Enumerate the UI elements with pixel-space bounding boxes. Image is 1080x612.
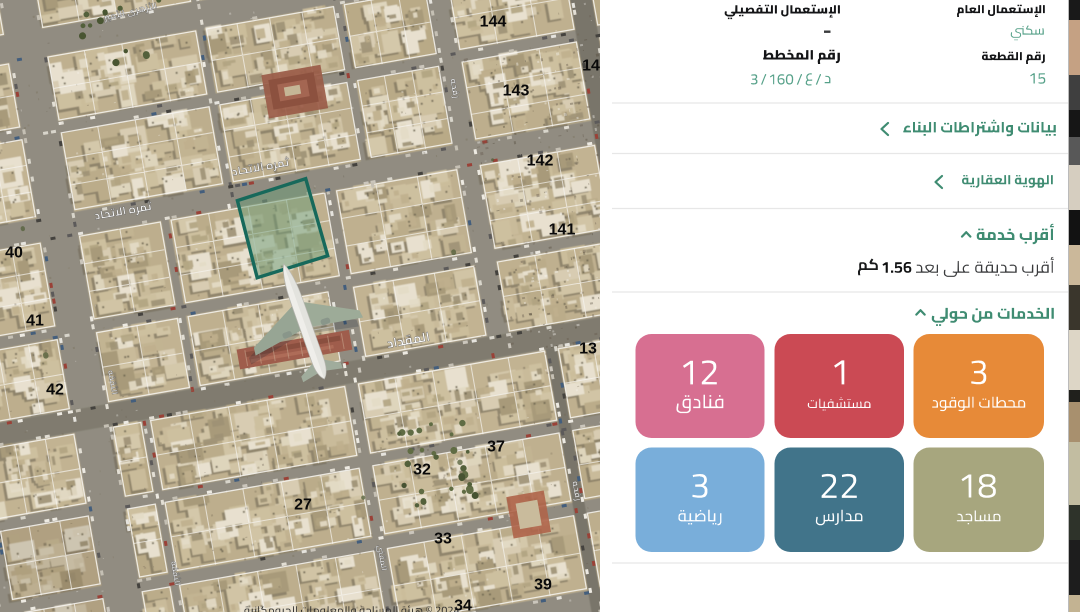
svg-text:41: 41 [26,313,44,330]
svg-text:141: 141 [549,222,576,239]
svg-text:40: 40 [5,245,23,262]
svg-text:33: 33 [434,531,452,548]
svg-text:37: 37 [487,439,505,456]
svg-text:27: 27 [294,497,312,514]
svg-text:142: 142 [527,153,554,170]
svg-text:143: 143 [503,83,530,100]
svg-text:144: 144 [480,14,507,31]
svg-text:13: 13 [579,341,597,358]
svg-text:34: 34 [454,598,472,612]
svg-text:39: 39 [534,577,552,594]
svg-text:32: 32 [413,462,431,479]
svg-text:42: 42 [46,382,64,399]
svg-text:14: 14 [582,58,600,75]
